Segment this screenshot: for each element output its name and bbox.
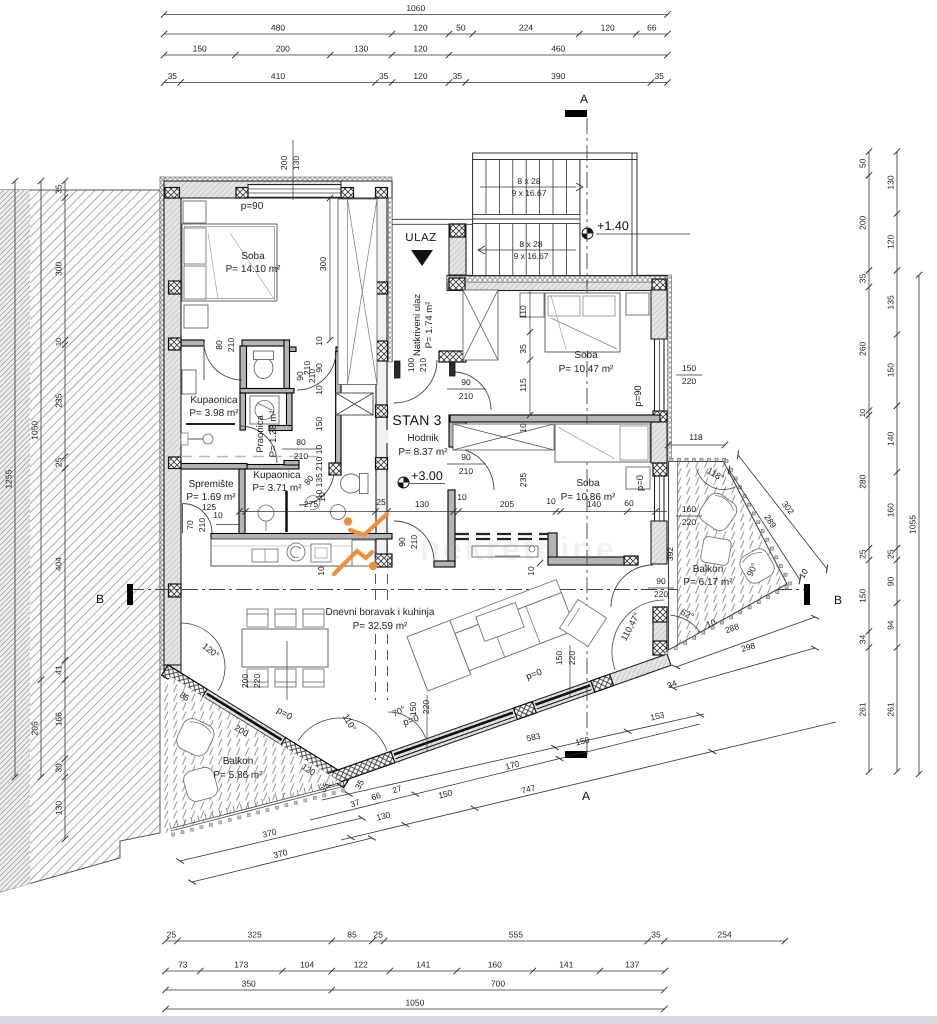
svg-text:235: 235 [54, 393, 64, 407]
svg-text:P= 5.86 m²: P= 5.86 m² [213, 770, 263, 781]
svg-text:+3.00: +3.00 [411, 469, 443, 483]
svg-text:9 x 16.67: 9 x 16.67 [512, 188, 547, 198]
svg-text:110: 110 [518, 305, 528, 319]
svg-text:90: 90 [461, 452, 471, 462]
svg-text:210: 210 [418, 358, 428, 372]
svg-text:41: 41 [54, 665, 64, 675]
svg-text:200: 200 [279, 156, 289, 170]
svg-text:280: 280 [858, 474, 868, 488]
svg-text:10: 10 [518, 423, 528, 433]
svg-text:p=90: p=90 [633, 385, 644, 406]
svg-text:220: 220 [421, 700, 431, 714]
svg-text:10: 10 [526, 566, 536, 576]
svg-text:140: 140 [886, 432, 896, 446]
svg-text:B: B [834, 593, 842, 607]
svg-text:166: 166 [54, 712, 64, 726]
svg-text:25: 25 [376, 497, 386, 507]
svg-text:90: 90 [397, 537, 407, 547]
svg-text:A: A [580, 92, 588, 106]
svg-text:1050: 1050 [30, 421, 40, 440]
svg-text:1255: 1255 [4, 469, 14, 488]
svg-text:140: 140 [587, 499, 601, 509]
svg-text:P= 3.98 m²: P= 3.98 m² [189, 408, 239, 419]
svg-text:85: 85 [347, 930, 357, 940]
svg-text:150: 150 [682, 363, 696, 373]
svg-text:ULAZ: ULAZ [405, 232, 436, 244]
svg-text:P= 10.47 m²: P= 10.47 m² [559, 364, 614, 375]
svg-text:P= 6.17 m²: P= 6.17 m² [683, 577, 733, 588]
svg-text:350: 350 [242, 979, 256, 989]
svg-text:P= 32.59 m²: P= 32.59 m² [353, 621, 408, 632]
svg-text:73: 73 [178, 960, 188, 970]
svg-text:160: 160 [886, 503, 896, 517]
svg-text:210: 210 [302, 361, 312, 375]
svg-text:120: 120 [886, 235, 896, 249]
svg-text:90: 90 [656, 576, 666, 586]
svg-text:120: 120 [601, 23, 615, 33]
svg-text:200: 200 [858, 215, 868, 229]
svg-text:p=90: p=90 [241, 201, 264, 212]
svg-text:122: 122 [354, 960, 368, 970]
svg-text:555: 555 [509, 930, 523, 940]
svg-text:Natkriveni ulaz: Natkriveni ulaz [412, 294, 423, 357]
svg-text:300: 300 [318, 257, 328, 271]
svg-text:10: 10 [546, 496, 556, 506]
svg-text:220: 220 [654, 589, 668, 599]
svg-text:210: 210 [459, 391, 473, 401]
svg-text:210: 210 [294, 451, 308, 461]
svg-text:200: 200 [276, 44, 290, 54]
svg-text:35: 35 [453, 71, 463, 81]
svg-text:235: 235 [518, 473, 528, 487]
svg-text:39: 39 [54, 763, 64, 773]
svg-text:224: 224 [519, 23, 533, 33]
svg-text:135: 135 [886, 295, 896, 309]
svg-text:8 x 28: 8 x 28 [519, 239, 542, 249]
svg-text:254: 254 [718, 930, 732, 940]
svg-text:35: 35 [651, 930, 661, 940]
svg-text:Kupaonica: Kupaonica [253, 470, 301, 481]
svg-text:700: 700 [491, 979, 505, 989]
svg-text:A: A [582, 789, 590, 803]
svg-text:160: 160 [488, 960, 502, 970]
svg-text:150: 150 [858, 588, 868, 602]
svg-text:Dnevni boravak i kuhinja: Dnevni boravak i kuhinja [326, 607, 435, 618]
svg-text:205: 205 [500, 499, 514, 509]
svg-text:66: 66 [647, 23, 657, 33]
svg-text:115: 115 [518, 378, 528, 392]
svg-text:Soba: Soba [574, 350, 598, 361]
svg-text:480: 480 [271, 23, 285, 33]
svg-text:nekretnine: nekretnine [420, 530, 617, 567]
svg-text:35: 35 [654, 71, 664, 81]
svg-text:9 x 16.67: 9 x 16.67 [514, 251, 549, 261]
svg-text:8 x 28: 8 x 28 [517, 176, 540, 186]
svg-text:Soba: Soba [241, 251, 265, 262]
svg-text:P= 1.28 m²: P= 1.28 m² [268, 411, 279, 458]
svg-text:130: 130 [54, 801, 64, 815]
svg-text:90: 90 [886, 577, 896, 587]
svg-text:Balkon: Balkon [693, 564, 724, 575]
svg-text:50: 50 [456, 23, 466, 33]
svg-text:P= 14.10 m²: P= 14.10 m² [226, 264, 281, 275]
svg-text:10: 10 [314, 336, 324, 346]
svg-text:94: 94 [886, 620, 896, 630]
svg-text:150: 150 [886, 363, 896, 377]
svg-text:392: 392 [665, 547, 675, 561]
svg-text:Spremište: Spremište [188, 479, 233, 490]
svg-text:1055: 1055 [908, 515, 918, 534]
svg-text:35: 35 [858, 274, 868, 284]
svg-text:120: 120 [413, 71, 427, 81]
svg-text:25: 25 [54, 457, 64, 467]
svg-text:410: 410 [271, 71, 285, 81]
svg-text:P= 1.74 m²: P= 1.74 m² [424, 302, 435, 349]
svg-text:210: 210 [409, 535, 419, 549]
svg-text:141: 141 [559, 960, 573, 970]
svg-text:90: 90 [314, 363, 324, 373]
svg-text:80: 80 [296, 437, 306, 447]
svg-text:120: 120 [413, 44, 427, 54]
svg-text:10: 10 [54, 338, 63, 346]
svg-text:390: 390 [551, 71, 565, 81]
svg-text:210: 210 [459, 466, 473, 476]
svg-text:173: 173 [234, 960, 248, 970]
svg-text:Soba: Soba [576, 478, 600, 489]
svg-text:90: 90 [461, 377, 471, 387]
svg-text:150: 150 [554, 651, 564, 665]
svg-text:104: 104 [300, 960, 314, 970]
svg-text:137: 137 [625, 960, 639, 970]
svg-text:60: 60 [624, 498, 634, 508]
svg-text:275: 275 [304, 499, 318, 509]
svg-text:70: 70 [185, 520, 195, 530]
svg-text:210: 210 [226, 338, 236, 352]
svg-text:10: 10 [316, 566, 326, 576]
svg-text:460: 460 [551, 44, 565, 54]
svg-text:210: 210 [197, 518, 207, 532]
svg-text:261: 261 [886, 702, 896, 716]
svg-text:25: 25 [886, 549, 896, 559]
svg-text:35: 35 [168, 71, 178, 81]
svg-text:34: 34 [858, 635, 868, 645]
svg-text:220: 220 [567, 651, 577, 665]
svg-text:325: 325 [248, 930, 262, 940]
svg-text:220: 220 [682, 376, 696, 386]
svg-text:35: 35 [54, 184, 64, 194]
svg-text:Kupaonica: Kupaonica [190, 395, 238, 406]
svg-text:404: 404 [54, 557, 64, 571]
svg-text:10 135 210 10: 10 135 210 10 [314, 445, 324, 500]
svg-text:25: 25 [373, 930, 383, 940]
svg-text:10: 10 [213, 510, 223, 520]
svg-text:Hodnik: Hodnik [407, 433, 439, 444]
svg-text:200: 200 [240, 674, 250, 688]
svg-text:P= 3.71 m²: P= 3.71 m² [252, 483, 302, 494]
svg-text:1050: 1050 [405, 998, 424, 1008]
svg-text:141: 141 [416, 960, 430, 970]
svg-text:261: 261 [858, 702, 868, 716]
svg-text:220: 220 [682, 517, 696, 527]
svg-text:B: B [96, 592, 104, 606]
svg-text:160: 160 [682, 504, 696, 514]
svg-text:120: 120 [413, 23, 427, 33]
svg-text:10: 10 [314, 385, 324, 395]
svg-text:100: 100 [406, 358, 416, 372]
svg-text:10: 10 [457, 492, 467, 502]
svg-text:STAN 3: STAN 3 [392, 412, 441, 428]
svg-text:1060: 1060 [406, 3, 425, 13]
svg-text:220: 220 [252, 674, 262, 688]
svg-text:35: 35 [379, 71, 389, 81]
svg-text:260: 260 [858, 341, 868, 355]
svg-text:P= 8.37 m²: P= 8.37 m² [398, 447, 448, 458]
svg-text:130: 130 [291, 156, 301, 170]
svg-text:50: 50 [858, 158, 868, 168]
svg-text:+1.40: +1.40 [597, 219, 629, 233]
svg-text:p=0: p=0 [635, 475, 646, 491]
svg-text:10: 10 [858, 409, 867, 417]
svg-text:80: 80 [214, 340, 224, 350]
svg-text:205: 205 [30, 721, 40, 735]
svg-text:130: 130 [354, 44, 368, 54]
svg-text:25: 25 [167, 930, 177, 940]
svg-text:130: 130 [886, 175, 896, 189]
svg-text:150: 150 [314, 417, 324, 431]
svg-text:118: 118 [689, 432, 703, 442]
svg-text:25: 25 [858, 549, 868, 559]
svg-text:Balkon: Balkon [223, 756, 254, 767]
svg-text:Praonica: Praonica [255, 415, 266, 453]
svg-text:150: 150 [193, 44, 207, 54]
svg-text:35: 35 [518, 344, 528, 354]
svg-text:300: 300 [54, 262, 64, 276]
svg-text:130: 130 [415, 499, 429, 509]
